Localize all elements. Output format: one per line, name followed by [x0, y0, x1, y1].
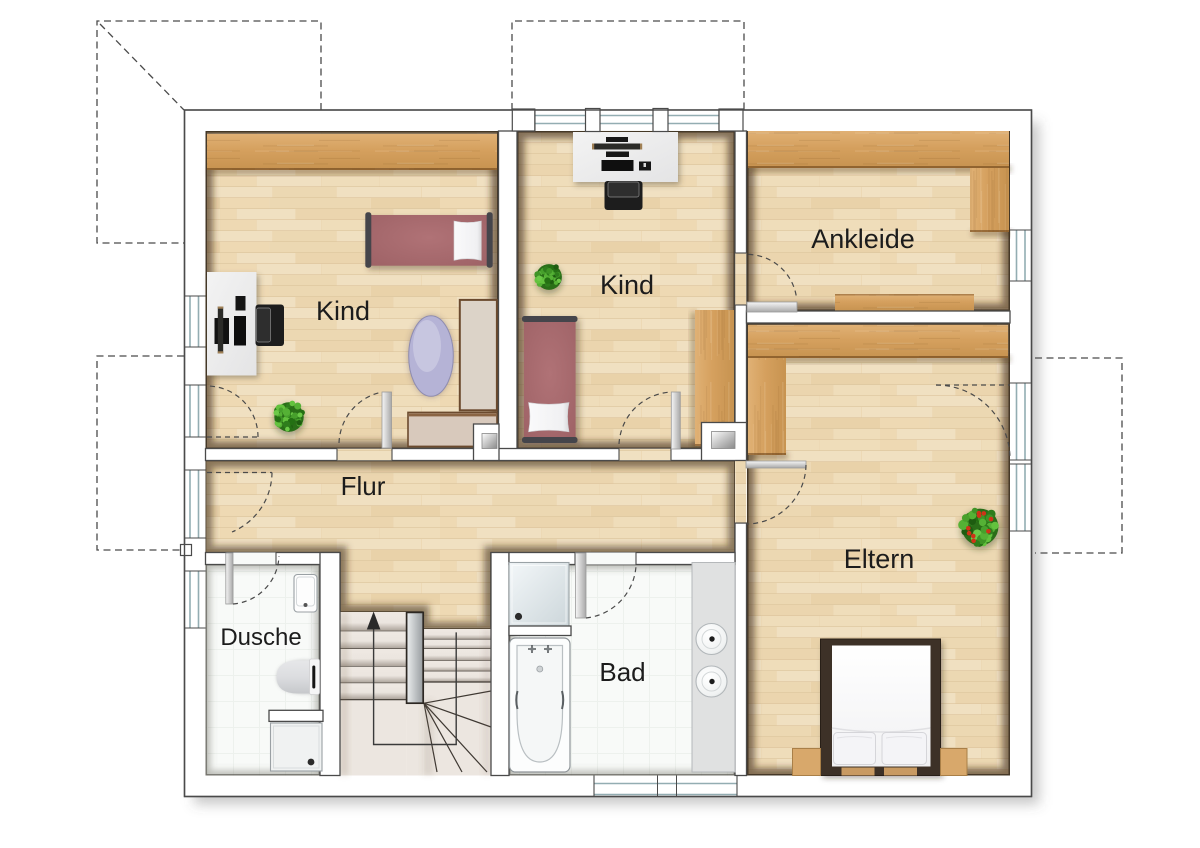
svg-text:Eltern: Eltern [844, 544, 915, 574]
svg-text:Dusche: Dusche [220, 624, 301, 651]
svg-text:Flur: Flur [341, 471, 386, 501]
svg-text:Ankleide: Ankleide [811, 224, 915, 254]
svg-text:Kind: Kind [316, 296, 370, 326]
svg-text:Kind: Kind [600, 270, 654, 300]
svg-text:Bad: Bad [599, 657, 645, 687]
